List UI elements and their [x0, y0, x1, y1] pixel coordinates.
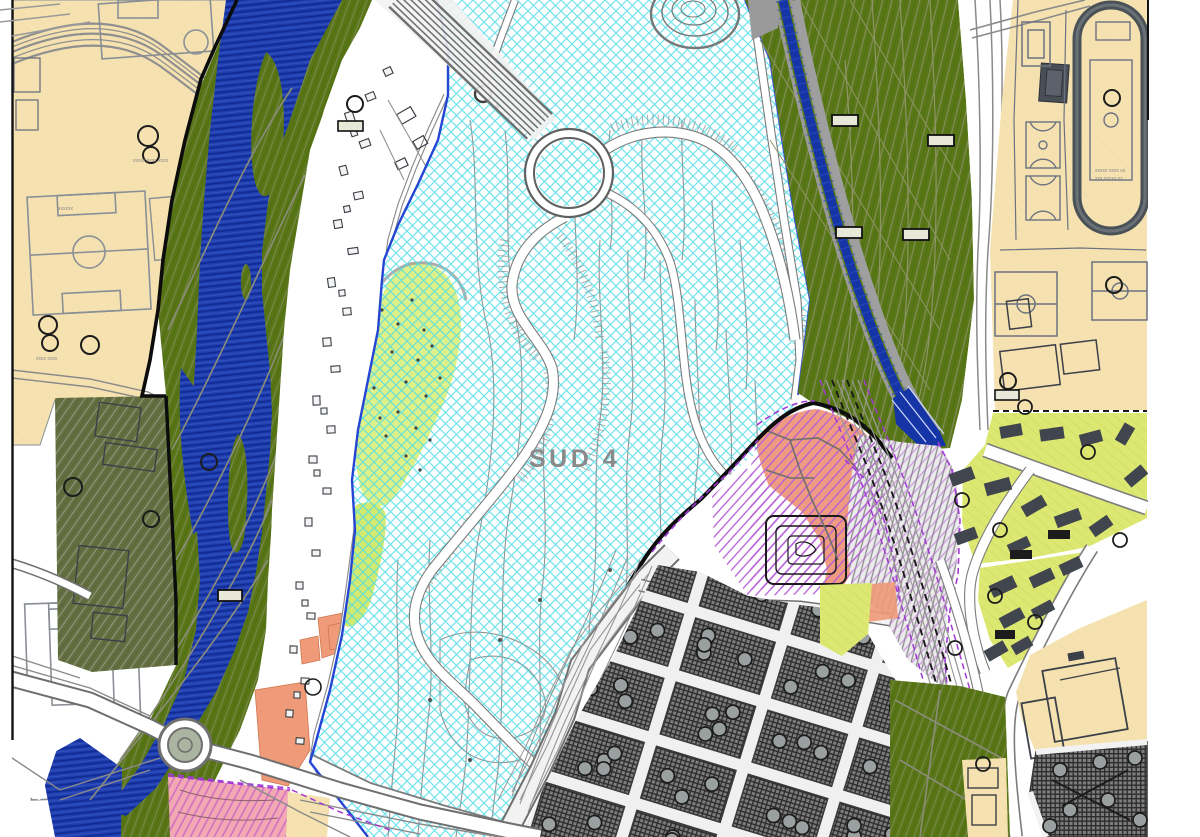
svg-text:xxxxxx: xxxxxx [58, 206, 74, 212]
svg-text:xxx xxxxx xx: xxx xxxxx xx [1095, 176, 1123, 182]
svg-text:xxxx xxxx: xxxx xxxx [36, 356, 58, 362]
svg-text:xxxxx xxxx xxxx: xxxxx xxxx xxxx [133, 158, 169, 164]
svg-text:xxxxx xxxx xx: xxxxx xxxx xx [1095, 168, 1126, 174]
svg-text:SUD 4: SUD 4 [529, 445, 620, 473]
